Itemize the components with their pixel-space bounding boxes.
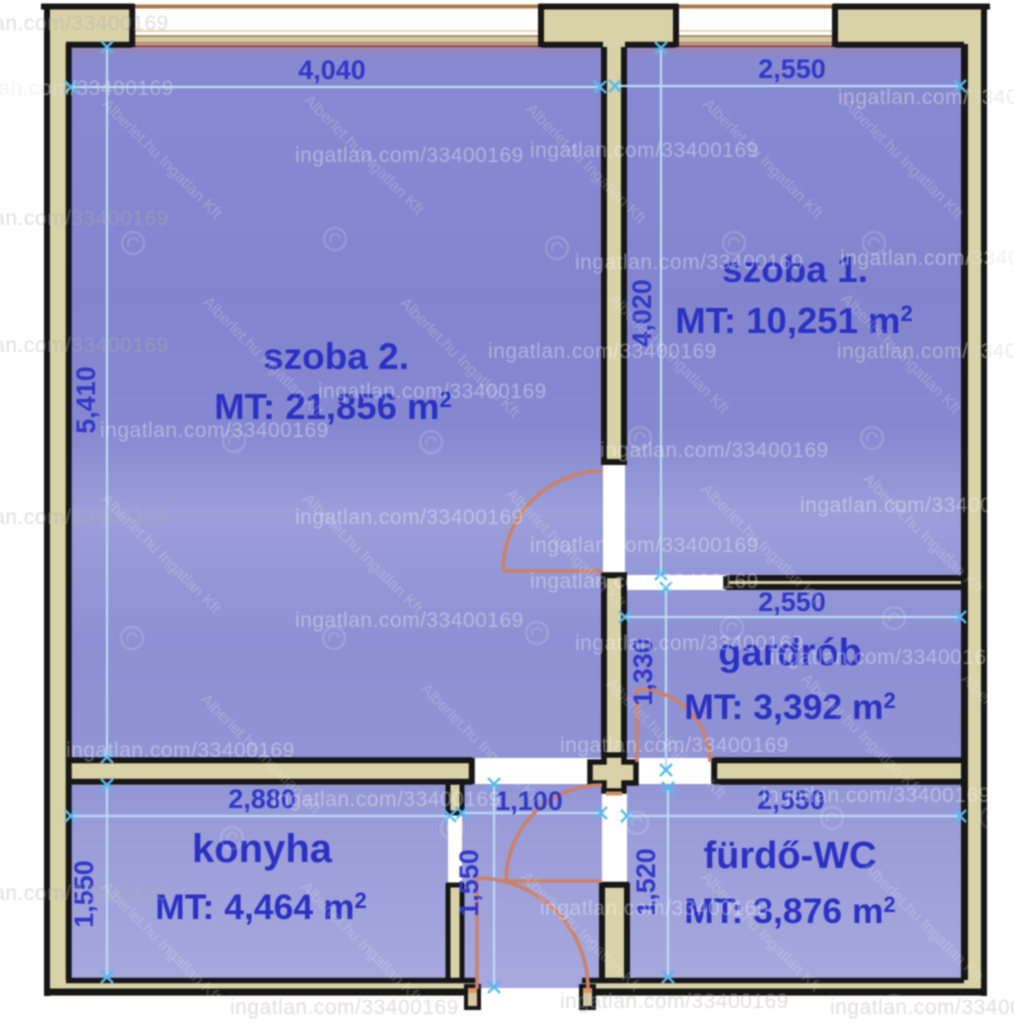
svg-text:ingatlan.com/33400169: ingatlan.com/33400169 xyxy=(830,996,1014,1019)
svg-text:ingatlan.com/33400169: ingatlan.com/33400169 xyxy=(560,990,789,1013)
svg-text:MT: 3,392 m2: MT: 3,392 m2 xyxy=(684,687,896,727)
svg-text:4,040: 4,040 xyxy=(298,55,366,85)
svg-text:ingatlan.com/33400169: ingatlan.com/33400169 xyxy=(295,144,524,167)
svg-text:ingatlan.com/33400169: ingatlan.com/33400169 xyxy=(0,334,169,357)
svg-text:ingatlan.com/33400169: ingatlan.com/33400169 xyxy=(530,570,759,593)
svg-text:ingatlan.com/33400169: ingatlan.com/33400169 xyxy=(770,646,999,669)
svg-text:ingatlan.com/33400169: ingatlan.com/33400169 xyxy=(600,439,829,462)
svg-text:ingatlan.com/33400169: ingatlan.com/33400169 xyxy=(230,996,459,1019)
svg-text:2,550: 2,550 xyxy=(758,54,826,84)
svg-text:ingatlan.com/33400169: ingatlan.com/33400169 xyxy=(762,784,991,807)
svg-text:fürdő-WC: fürdő-WC xyxy=(703,835,876,877)
svg-text:ingatlan.com/33400169: ingatlan.com/33400169 xyxy=(0,77,174,100)
svg-text:ingatlan.com/33400169: ingatlan.com/33400169 xyxy=(0,207,169,230)
svg-text:ingatlan.com/33400169: ingatlan.com/33400169 xyxy=(0,882,169,905)
svg-text:ingatlan.com/33400169: ingatlan.com/33400169 xyxy=(0,12,169,35)
svg-text:5,410: 5,410 xyxy=(71,366,101,434)
svg-text:ingatlan.com/33400169: ingatlan.com/33400169 xyxy=(837,340,1014,363)
svg-text:ingatlan.com/33400169: ingatlan.com/33400169 xyxy=(575,251,804,274)
svg-text:ingatlan.com/33400169: ingatlan.com/33400169 xyxy=(838,86,1014,109)
svg-text:1,550: 1,550 xyxy=(454,849,484,917)
svg-text:konyha: konyha xyxy=(192,827,333,871)
svg-text:ingatlan.com/33400169: ingatlan.com/33400169 xyxy=(100,419,329,442)
